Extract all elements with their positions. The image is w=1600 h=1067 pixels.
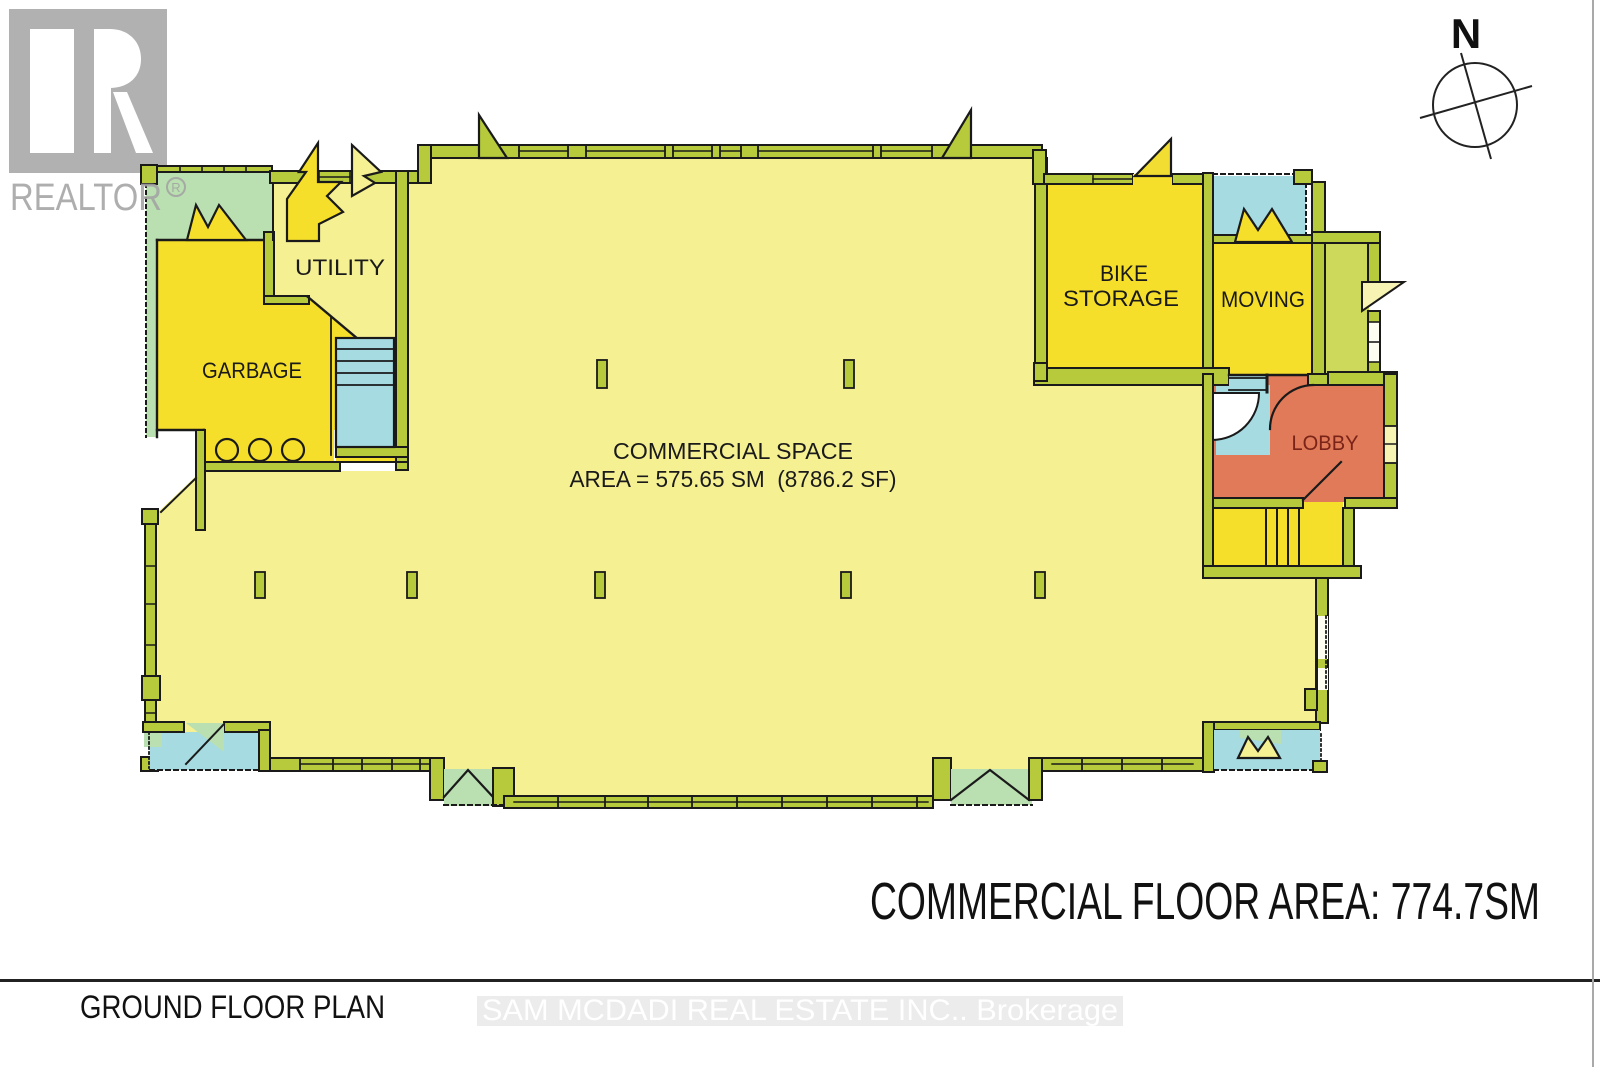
svg-text:STORAGE: STORAGE [1063,286,1179,311]
svg-text:R: R [171,180,180,195]
svg-text:REALTOR: REALTOR [10,177,162,219]
svg-text:COMMERCIAL SPACE: COMMERCIAL SPACE [613,438,853,464]
svg-text:COMMERCIAL FLOOR AREA: 774.7SM: COMMERCIAL FLOOR AREA: 774.7SM [870,873,1540,931]
svg-text:GARBAGE: GARBAGE [202,358,302,383]
svg-text:MOVING: MOVING [1221,287,1305,312]
svg-text:GROUND FLOOR PLAN: GROUND FLOOR PLAN [80,989,385,1025]
svg-text:N: N [1451,10,1481,57]
svg-text:BIKE: BIKE [1100,261,1148,286]
svg-text:UTILITY: UTILITY [295,255,385,280]
svg-text:SAM MCDADI REAL ESTATE INC.. B: SAM MCDADI REAL ESTATE INC.. Brokerage [482,994,1118,1027]
svg-text:AREA = 575.65 SM (8786.2 SF): AREA = 575.65 SM (8786.2 SF) [570,466,897,492]
svg-text:LOBBY: LOBBY [1292,432,1359,455]
